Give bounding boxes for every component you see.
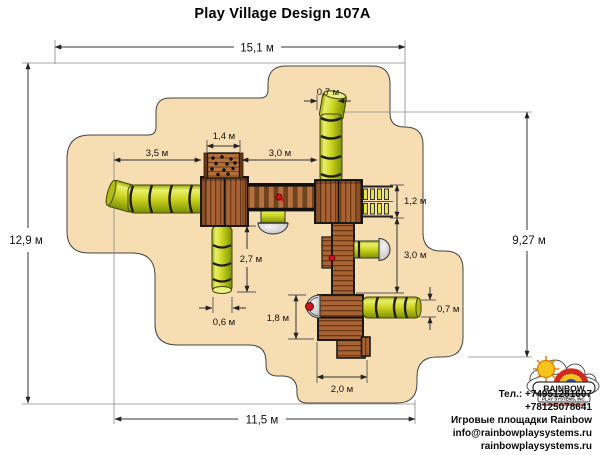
dim-label: 12,9 м bbox=[9, 235, 43, 247]
dim-label: 1,8 м bbox=[267, 313, 289, 324]
dim-label: 3,0 м bbox=[404, 250, 426, 261]
plan-drawing: 15,1 м 12,9 м 11,5 м 9,27 м 3,5 м bbox=[0, 0, 600, 455]
dim-label: 1,4 м bbox=[213, 131, 235, 142]
contact-email: info@rainbowplaysystems.ru bbox=[451, 428, 592, 441]
bridge bbox=[248, 183, 316, 211]
dim-label: 15,1 м bbox=[240, 43, 274, 55]
page-title: Play Village Design 107A bbox=[0, 6, 565, 22]
dim-label: 2,0 м bbox=[331, 384, 353, 395]
dim-label: 0,7 м bbox=[437, 304, 459, 315]
lower-platform bbox=[318, 295, 363, 340]
contact-phone-primary: Тел.: +74951281607 bbox=[451, 389, 592, 402]
climbing-wall bbox=[204, 153, 243, 178]
dim-right-height: 9,27 м bbox=[512, 112, 546, 357]
play-bucket bbox=[258, 208, 288, 234]
tube-slide-right bbox=[363, 297, 421, 318]
bottom-stairs bbox=[337, 337, 370, 358]
dim-label: 2,7 м bbox=[240, 254, 262, 265]
dim-label: 11,5 м bbox=[246, 415, 279, 427]
safety-zone bbox=[67, 66, 463, 403]
plan-sheet: Play Village Design 107A bbox=[0, 0, 600, 455]
dim-label: 3,5 м bbox=[146, 148, 168, 159]
dim-label: 9,27 м bbox=[512, 235, 546, 247]
dim-left-height: 12,9 м bbox=[9, 63, 43, 403]
dim-label: 3,0 м bbox=[269, 148, 291, 159]
flower-decor bbox=[329, 255, 335, 261]
dim-bottom-width: 11,5 м bbox=[115, 415, 415, 427]
dim-overall-width: 15,1 м bbox=[55, 43, 405, 55]
vertical-slide bbox=[212, 226, 232, 294]
contact-block: Тел.: +74951281607 +78125078641 Игровые … bbox=[451, 389, 592, 454]
dim-label: 0,7 м bbox=[317, 87, 339, 98]
contact-phone-secondary: +78125078641 bbox=[451, 402, 592, 415]
dim-label: 0,6 м bbox=[213, 317, 235, 328]
dim-label: 1,2 м bbox=[404, 196, 426, 207]
tower-left bbox=[201, 177, 248, 226]
contact-website: rainbowplaysystems.ru bbox=[451, 441, 592, 454]
contact-company: Игровые площадки Rainbow bbox=[451, 415, 592, 428]
side-panel bbox=[322, 237, 332, 268]
tower-right bbox=[315, 180, 362, 223]
periscope bbox=[354, 239, 390, 261]
